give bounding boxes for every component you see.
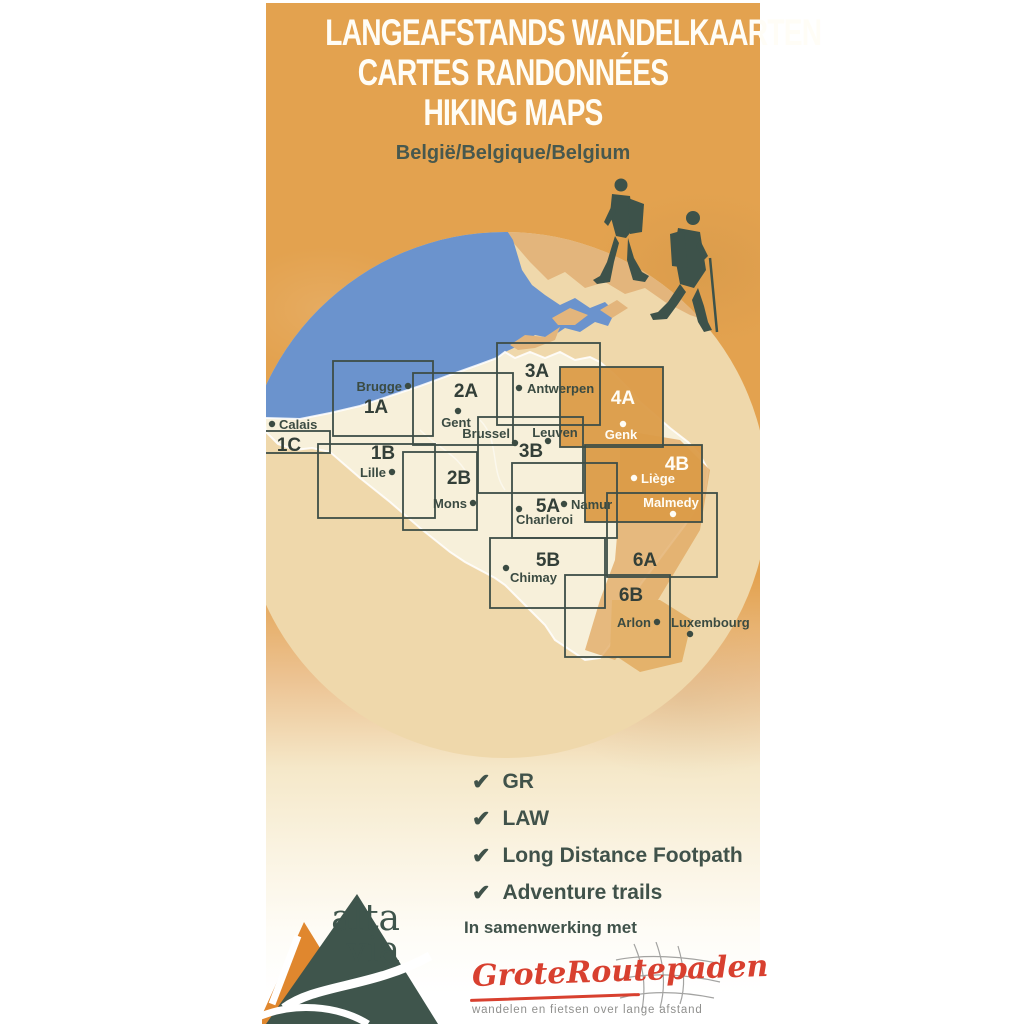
- map-sheet-label-3A: 3A: [525, 361, 550, 382]
- partner-block: In samenwerking met GroteRoutepaden wand…: [464, 918, 744, 1018]
- city-label-Namur: Namur: [571, 497, 612, 512]
- map-sheet-label-6B: 6B: [619, 585, 643, 606]
- city-label-Malmedy: Malmedy: [643, 495, 699, 510]
- partner-tagline: wandelen en fietsen over lange afstand: [472, 1004, 703, 1016]
- city-dot-Liège: [631, 475, 637, 481]
- city-dot-Antwerpen: [516, 385, 522, 391]
- map-sheet-label-2B: 2B: [447, 468, 471, 489]
- city-dot-Brussel: [512, 440, 518, 446]
- city-label-Leuven: Leuven: [532, 425, 578, 440]
- check-icon: ✔: [472, 769, 490, 795]
- city-label-Brussel: Brussel: [462, 426, 510, 441]
- city-label-Liège: Liège: [641, 471, 675, 486]
- feature-item: ✔GR: [472, 763, 743, 800]
- city-dot-Mons: [470, 500, 476, 506]
- city-label-Arlon: Arlon: [617, 615, 651, 630]
- city-dot-Lille: [389, 469, 395, 475]
- check-icon: ✔: [472, 843, 490, 869]
- title-block: LANGEAFSTANDS WANDELKAARTEN CARTES RANDO…: [266, 13, 760, 165]
- city-dot-Namur: [561, 501, 567, 507]
- check-icon: ✔: [472, 880, 490, 906]
- brand-word-via: via: [346, 930, 400, 971]
- trekking-pole: [710, 258, 717, 332]
- check-icon: ✔: [472, 806, 490, 832]
- city-label-Lille: Lille: [360, 465, 386, 480]
- map-sheet-label-1A: 1A: [364, 397, 389, 418]
- cover-front: LANGEAFSTANDS WANDELKAARTEN CARTES RANDO…: [266, 3, 760, 1024]
- city-label-Mons: Mons: [433, 496, 467, 511]
- feature-label: Adventure trails: [502, 881, 662, 905]
- city-label-Luxembourg: Luxembourg: [671, 615, 750, 630]
- title-line-dutch: LANGEAFSTANDS WANDELKAARTEN: [325, 13, 700, 53]
- map-sheet-label-1C: 1C: [277, 435, 302, 456]
- partner-name-script: GroteRoutepaden: [471, 949, 768, 994]
- city-dot-Arlon: [654, 619, 660, 625]
- grote-routepaden-logo: GroteRoutepaden wandelen en fietsen over…: [464, 948, 744, 1018]
- feature-checklist: ✔GR ✔LAW ✔Long Distance Footpath ✔Advent…: [472, 763, 743, 911]
- city-label-Chimay: Chimay: [510, 570, 558, 585]
- alta-via-logo: alta via: [250, 890, 450, 1024]
- map-cover-photo: LANGEAFSTANDS WANDELKAARTEN CARTES RANDO…: [0, 0, 1024, 1024]
- country-subtitle: België/Belgique/Belgium: [266, 142, 760, 165]
- city-label-Calais: Calais: [279, 417, 317, 432]
- title-line-french: CARTES RANDONNÉES: [325, 53, 700, 93]
- city-label-Brugge: Brugge: [357, 379, 403, 394]
- city-dot-Chimay: [503, 565, 509, 571]
- map-sheet-label-2A: 2A: [454, 381, 479, 402]
- city-label-Genk: Genk: [605, 427, 638, 442]
- map-sheet-label-5B: 5B: [536, 550, 560, 571]
- belgium-sheet-index-map: 1A2A3A4A1C1B2B3B4B5A5B6A6B BruggeCalaisL…: [266, 166, 760, 780]
- map-sheet-label-1B: 1B: [371, 443, 395, 464]
- feature-item: ✔LAW: [472, 800, 743, 837]
- map-sheet-label-4A: 4A: [611, 388, 636, 409]
- city-label-Charleroi: Charleroi: [516, 512, 573, 527]
- city-dot-Gent: [455, 408, 461, 414]
- feature-item: ✔Long Distance Footpath: [472, 837, 743, 874]
- title-line-english: HIKING MAPS: [325, 93, 700, 133]
- city-dot-Calais: [269, 421, 275, 427]
- feature-label: Long Distance Footpath: [502, 844, 742, 868]
- feature-item: ✔Adventure trails: [472, 874, 743, 911]
- city-dot-Malmedy: [670, 511, 676, 517]
- partner-intro: In samenwerking met: [464, 918, 744, 938]
- map-sheet-label-6A: 6A: [633, 550, 658, 571]
- feature-label: LAW: [502, 807, 549, 831]
- city-dot-Luxembourg: [687, 631, 693, 637]
- map-sheet-label-3B: 3B: [519, 441, 543, 462]
- feature-label: GR: [502, 770, 534, 794]
- city-label-Antwerpen: Antwerpen: [527, 381, 594, 396]
- city-dot-Brugge: [405, 383, 411, 389]
